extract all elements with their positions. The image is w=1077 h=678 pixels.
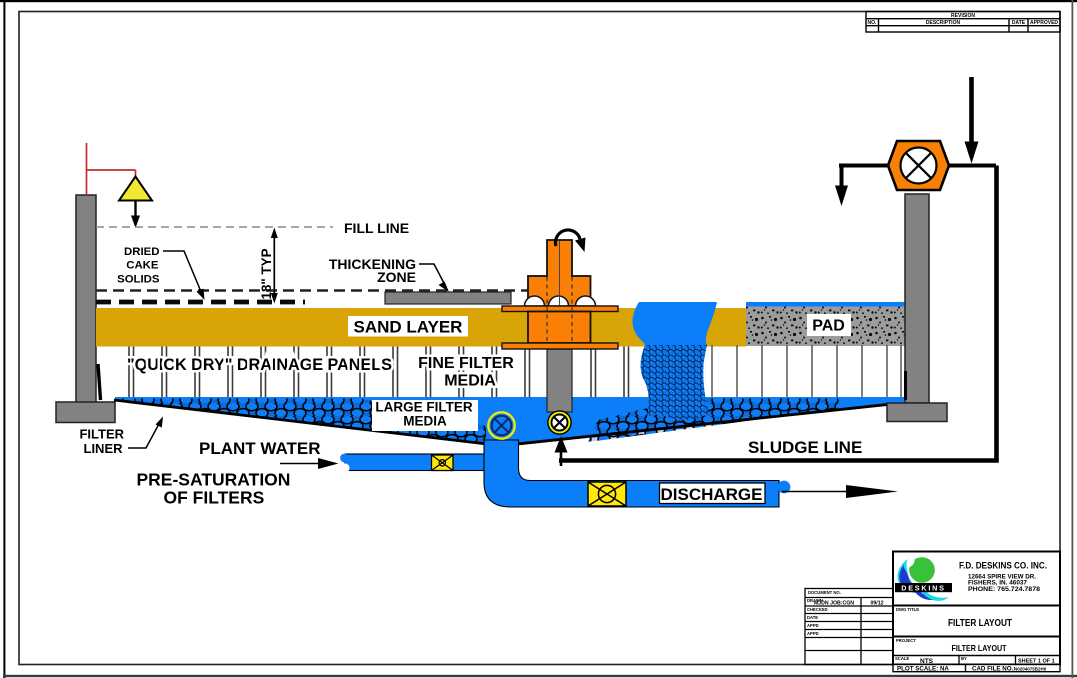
svg-text:SCALE: SCALE xyxy=(895,656,909,661)
svg-text:DRIED: DRIED xyxy=(124,246,159,258)
svg-text:CAD FILE NO.:: CAD FILE NO.: xyxy=(972,666,1015,673)
svg-text:FILL LINE: FILL LINE xyxy=(344,220,409,236)
svg-text:FILTER LAYOUT: FILTER LAYOUT xyxy=(952,643,1008,653)
svg-text:APPD: APPD xyxy=(807,631,819,636)
svg-text:REVISION: REVISION xyxy=(951,13,975,19)
svg-text:LARGE FILTER: LARGE FILTER xyxy=(375,400,472,415)
svg-text:MJDN JOB:CGN: MJDN JOB:CGN xyxy=(814,601,854,607)
svg-text:ZONE: ZONE xyxy=(377,269,416,285)
svg-text:DATE: DATE xyxy=(1012,20,1026,26)
svg-text:CAKE: CAKE xyxy=(126,260,159,272)
svg-text:DOCUMENT NO.: DOCUMENT NO. xyxy=(808,590,841,595)
svg-text:APPROVED: APPROVED xyxy=(1030,20,1058,26)
svg-text:09/12: 09/12 xyxy=(871,601,884,607)
svg-text:PHONE: 765.724.7878: PHONE: 765.724.7878 xyxy=(968,586,1041,593)
svg-text:SOLIDS: SOLIDS xyxy=(117,274,160,286)
svg-text:NO.: NO. xyxy=(868,20,878,26)
svg-text:CHECKED: CHECKED xyxy=(807,607,828,612)
svg-text:MEDIA: MEDIA xyxy=(444,373,496,390)
svg-text:FILTER: FILTER xyxy=(79,427,124,442)
svg-text:OF FILTERS: OF FILTERS xyxy=(164,488,265,508)
svg-text:PLANT WATER: PLANT WATER xyxy=(199,439,321,458)
svg-text:DWG TITLE: DWG TITLE xyxy=(896,607,919,612)
svg-text:DISCHARGE: DISCHARGE xyxy=(660,485,762,504)
svg-text:N0204075B2H0: N0204075B2H0 xyxy=(1014,666,1047,671)
svg-text:DESKINS: DESKINS xyxy=(901,584,946,593)
svg-text:F.D. DESKINS CO. INC.: F.D. DESKINS CO. INC. xyxy=(959,561,1047,571)
svg-text:FINE FILTER: FINE FILTER xyxy=(418,355,514,372)
svg-text:SHEET 1 OF 1: SHEET 1 OF 1 xyxy=(1018,659,1055,665)
svg-text:PLOT SCALE: NA: PLOT SCALE: NA xyxy=(897,666,949,673)
svg-text:LINER: LINER xyxy=(84,441,124,456)
svg-text:SLUDGE LINE: SLUDGE LINE xyxy=(748,438,862,457)
svg-text:FILTER LAYOUT: FILTER LAYOUT xyxy=(948,618,1012,629)
svg-text:18" TYP: 18" TYP xyxy=(259,248,274,299)
svg-text:PROJECT: PROJECT xyxy=(896,638,916,643)
svg-text:PAD: PAD xyxy=(812,318,845,335)
svg-text:DESCRIPTION: DESCRIPTION xyxy=(926,20,961,26)
svg-text:DATE: DATE xyxy=(807,615,818,620)
svg-text:BY: BY xyxy=(961,656,967,661)
svg-text:PRE-SATURATION: PRE-SATURATION xyxy=(137,470,291,490)
svg-text:APPD: APPD xyxy=(807,623,819,628)
svg-text:MEDIA: MEDIA xyxy=(403,414,447,429)
svg-text:SAND LAYER: SAND LAYER xyxy=(354,318,463,337)
svg-text:"QUICK DRY" DRAINAGE PANELS: "QUICK DRY" DRAINAGE PANELS xyxy=(127,356,392,374)
